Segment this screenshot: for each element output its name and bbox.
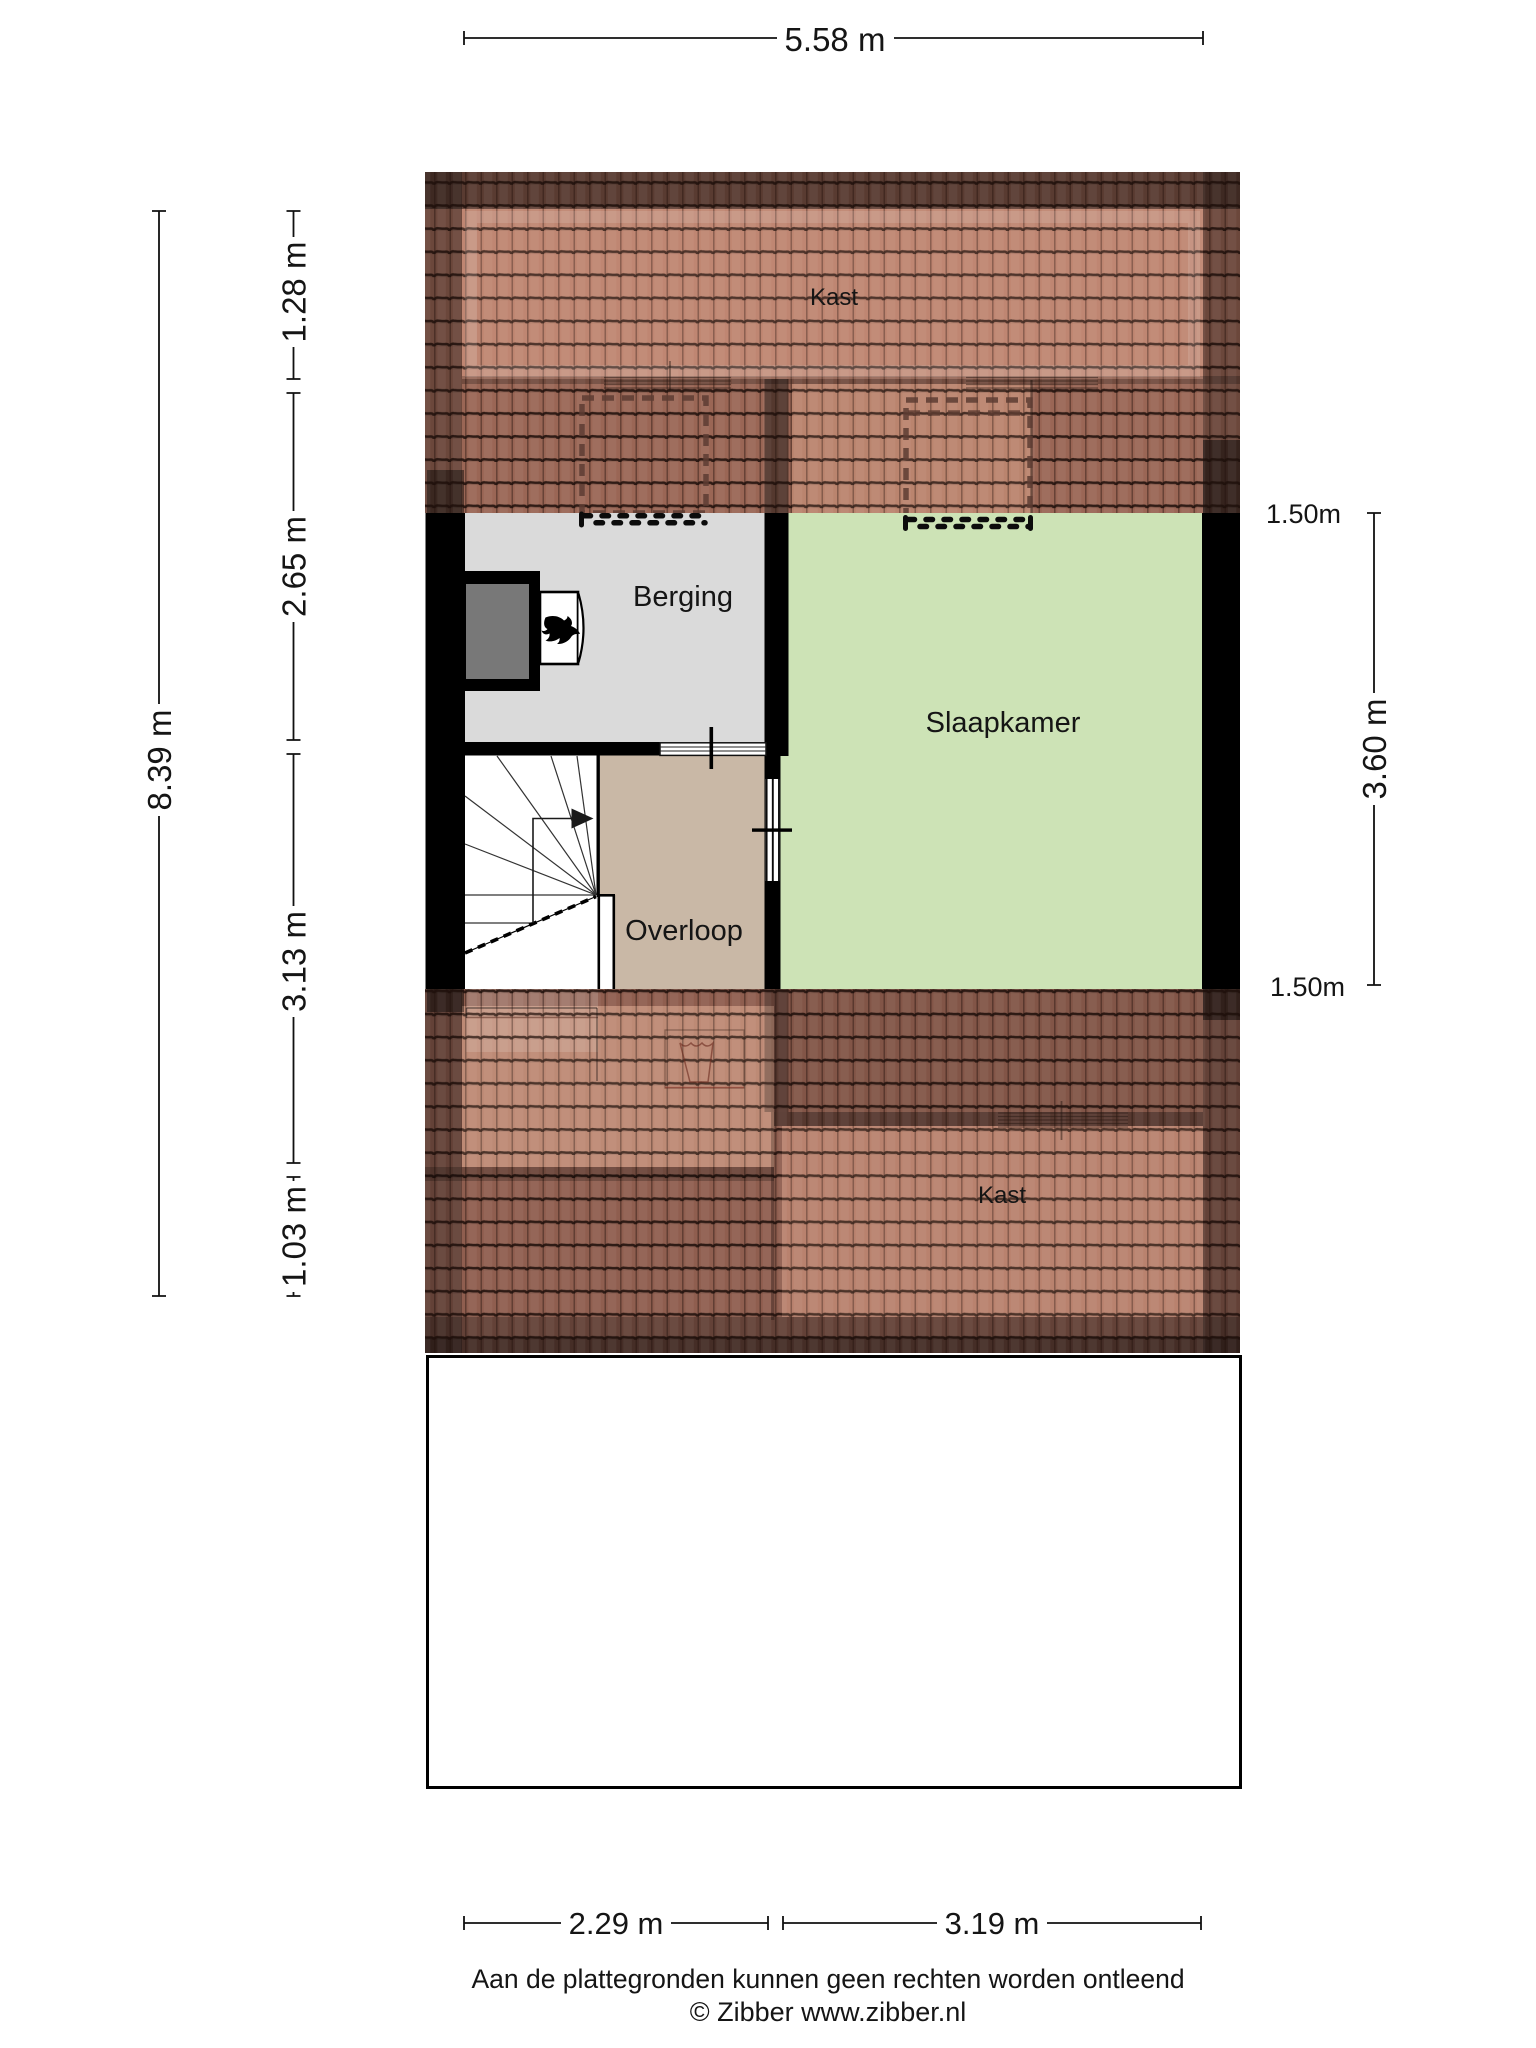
svg-text:1.50m: 1.50m	[1270, 972, 1345, 1002]
svg-text:2.65 m: 2.65 m	[276, 516, 313, 617]
svg-text:Aan de plattegronden kunnen ge: Aan de plattegronden kunnen geen rechten…	[471, 1964, 1184, 1994]
svg-text:1.03 m: 1.03 m	[276, 1186, 313, 1287]
svg-text:Slaapkamer: Slaapkamer	[926, 707, 1081, 739]
svg-text:3.60 m: 3.60 m	[1356, 699, 1393, 800]
svg-text:1.28 m: 1.28 m	[276, 242, 313, 343]
svg-text:Overloop: Overloop	[625, 915, 743, 947]
svg-text:3.13 m: 3.13 m	[276, 911, 313, 1012]
svg-text:2.29 m: 2.29 m	[569, 1906, 664, 1941]
svg-text:Kast: Kast	[978, 1182, 1026, 1209]
svg-text:Berging: Berging	[633, 581, 733, 613]
svg-text:8.39 m: 8.39 m	[141, 710, 178, 811]
svg-text:5.58 m: 5.58 m	[785, 21, 886, 58]
svg-text:1.50m: 1.50m	[1266, 499, 1341, 529]
svg-text:Kast: Kast	[810, 284, 858, 311]
svg-text:© Zibber www.zibber.nl: © Zibber www.zibber.nl	[690, 1997, 967, 2027]
svg-text:3.19 m: 3.19 m	[945, 1906, 1040, 1941]
